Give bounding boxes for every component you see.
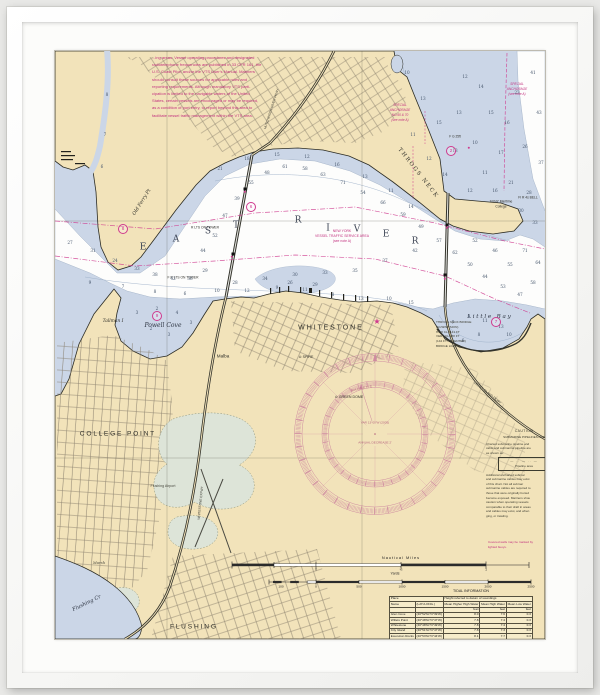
note-line: cipation is limited to the navigable wat… xyxy=(152,90,300,97)
note-line: ...ing areas. Vessel operating procedure… xyxy=(152,54,300,61)
note-line: radiotelephone frequencies are published… xyxy=(152,61,300,68)
tide-mhw: 7.7 xyxy=(480,634,507,639)
note-line: (see note A) xyxy=(491,92,543,97)
note-line: States, certain vessels are encouraged o… xyxy=(152,97,300,104)
tide-place-name: Execution Rocks xyxy=(390,634,416,639)
pipeline-area-symbol: — ·· — ·· — Pipeline area xyxy=(498,457,545,470)
picture-frame: EASTRIVERW H I T E S T O N EC O L L E G … xyxy=(7,7,593,688)
caution-body-2: Additional uncharted submarand submarine… xyxy=(486,473,545,519)
throgs-neck-bridge-note: THROGS NECK BRIDGE(SUSPENSION)HOR CL 114… xyxy=(436,320,494,349)
note-line: BRIDGE LIGHTS xyxy=(436,344,494,349)
vts-area-label: NEW YORKVESSEL TRAFFIC SERVICE AREA(see … xyxy=(305,229,379,244)
note-line: as a condition of port entry, to report … xyxy=(152,104,300,111)
pipeline-label: Pipeline area xyxy=(501,464,545,469)
caution-body-1: Charted submarine pipeline andcable and … xyxy=(486,442,545,456)
tidal-information-table: PlaceHeight referred to datum of soundin… xyxy=(389,596,533,639)
mat-board: EASTRIVERW H I T E S T O N EC O L L E G … xyxy=(22,22,578,673)
marina-cove xyxy=(391,55,403,73)
note-line: ging, or trawling. xyxy=(486,514,545,519)
vts-regulation-note: ...ing areas. Vessel operating procedure… xyxy=(152,54,300,119)
nautical-chart-print: EASTRIVERW H I T E S T O N EC O L L E G … xyxy=(55,51,545,639)
note-line: reporting requirements. Although mandato… xyxy=(152,83,300,90)
tide-mlw: 0.3 xyxy=(506,634,532,639)
note-line: facilitate vessel traffic management wit… xyxy=(152,112,300,119)
tide-latlong: (40°53'N/73°44'W) xyxy=(415,634,443,639)
caution-submarine-pipelines-note: CAUTION SUBMARINE PIPELINES AND Charted … xyxy=(486,429,545,519)
caution-title: CAUTION xyxy=(486,429,545,434)
framed-nautical-chart-photo: EASTRIVERW H I T E S T O N EC O L L E G … xyxy=(0,0,600,695)
caution-subtitle: SUBMARINE PIPELINES AND xyxy=(486,435,545,440)
tide-mhhw: 8.1 xyxy=(443,634,480,639)
note-line: as shown as: xyxy=(486,451,545,456)
note-line: lighted buoys. xyxy=(488,545,545,550)
note-line: (see note A) xyxy=(305,239,379,244)
special-anchorage-note: SPECIALANCHORAGENO.60 & 70(see note A) xyxy=(377,103,423,123)
note-line: (see note A) xyxy=(377,118,423,123)
special-anchorage-note-2: SPECIALANCHORAGE(see note A) xyxy=(491,82,543,97)
covered-wells-note: Covered wells may be marked bylighted bu… xyxy=(488,540,545,549)
note-line: should consult these sources for applica… xyxy=(152,76,300,83)
street-grid-flushing xyxy=(151,549,341,639)
note-line: U.S. Coast Pilot, and/or the VTS User's … xyxy=(152,68,300,75)
